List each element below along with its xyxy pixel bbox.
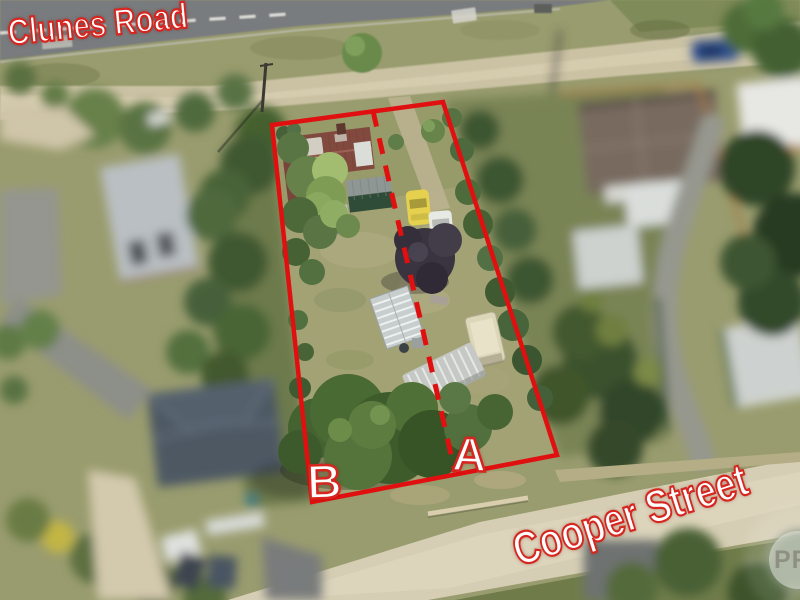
lot-divider-dashed-line <box>373 111 455 472</box>
aerial-photo: Clunes Road Cooper Street A B PR <box>0 0 800 600</box>
boundary-polygon <box>272 102 557 502</box>
watermark-text: PR <box>774 546 800 575</box>
lot-label-b: B <box>306 458 342 507</box>
lot-label-a: A <box>451 431 487 480</box>
